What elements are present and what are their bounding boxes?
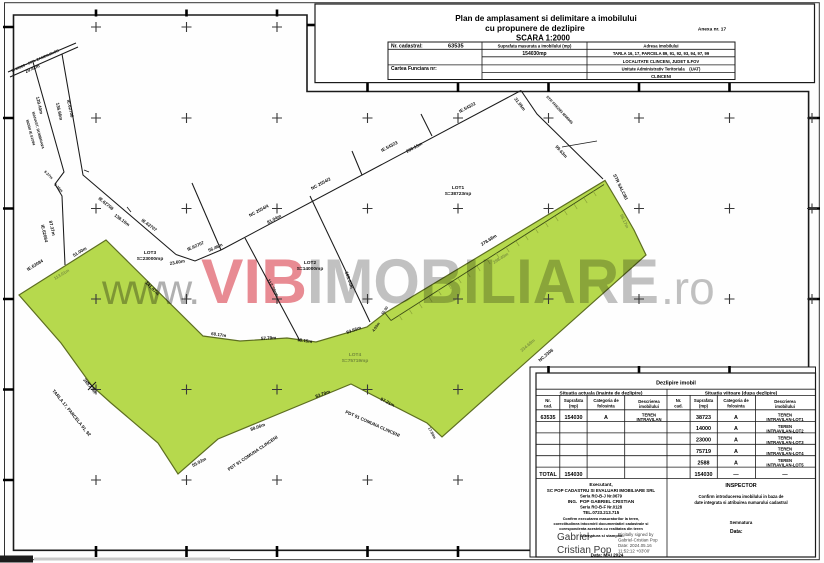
svg-text:Executant,: Executant, <box>589 482 612 487</box>
svg-text:Categoria de: Categoria de <box>593 398 619 403</box>
svg-text:date integrata si atribuirea n: date integrata si atribuirea numarului c… <box>694 500 787 505</box>
svg-text:Nr.: Nr. <box>545 398 551 403</box>
svg-text:63535: 63535 <box>448 44 464 50</box>
svg-text:IMOBILIARE: IMOBILIARE <box>307 247 659 317</box>
svg-text:INTRAVILAN: INTRAVILAN <box>636 417 661 422</box>
svg-text:63535: 63535 <box>541 415 556 421</box>
svg-text:Unitate Administrativ Teritori: Unitate Administrativ Teritoriala (UAT) <box>622 66 701 71</box>
svg-text:Suprafata: Suprafata <box>694 398 714 403</box>
svg-text:SC POP CADASTRU SI EVALUARI IM: SC POP CADASTRU SI EVALUARI IMOBILIARE S… <box>547 488 655 493</box>
svg-text:corectitudinea intocmirii docu: corectitudinea intocmirii documentatiei … <box>554 522 649 526</box>
svg-text:TEL.0723.213.715: TEL.0723.213.715 <box>583 510 620 515</box>
svg-text:Digitally signed by: Digitally signed by <box>618 532 654 537</box>
svg-text:(mp): (mp) <box>569 403 579 408</box>
svg-text:Categoria de: Categoria de <box>723 398 749 403</box>
svg-text:LOCALITATE CLINCENI, JUDET ILF: LOCALITATE CLINCENI, JUDET ILFOV <box>623 59 700 64</box>
svg-text:—: — <box>733 472 739 478</box>
svg-text:Plan de amplasament si delimit: Plan de amplasament si delimitare a imob… <box>455 14 637 23</box>
svg-text:A: A <box>734 460 738 466</box>
svg-text:Suprafata: Suprafata <box>564 398 584 403</box>
svg-text:14000: 14000 <box>696 426 711 432</box>
svg-text:2588: 2588 <box>698 460 710 466</box>
svg-text:INTRAVILAN-LOT1: INTRAVILAN-LOT1 <box>766 417 804 422</box>
svg-text:Data: MAI 2024: Data: MAI 2024 <box>591 553 624 558</box>
svg-text:cad.: cad. <box>544 403 552 408</box>
svg-text:75719: 75719 <box>696 449 711 455</box>
svg-text:S=38723mp: S=38723mp <box>445 191 472 197</box>
svg-text:Seria RO-B-F Nr.0128: Seria RO-B-F Nr.0128 <box>580 505 623 510</box>
svg-text:Date: 2024.05.16: Date: 2024.05.16 <box>618 543 652 548</box>
svg-text:(mp): (mp) <box>699 403 709 408</box>
svg-text:folosinta: folosinta <box>727 403 745 408</box>
svg-text:INTRAVILAN-LOT2: INTRAVILAN-LOT2 <box>766 428 804 433</box>
svg-text:38723: 38723 <box>696 415 711 421</box>
svg-text:ING. POP GABRIEL CRISTIAN: ING. POP GABRIEL CRISTIAN <box>568 499 635 504</box>
svg-text:LOT4: LOT4 <box>349 352 362 358</box>
svg-text:Gabriel-Cristian Pop: Gabriel-Cristian Pop <box>618 538 658 543</box>
svg-text:A: A <box>734 426 738 432</box>
svg-text:folosinta: folosinta <box>597 403 615 408</box>
svg-text:Suprafata masurata a imobilulu: Suprafata masurata a imobilului (mp) <box>498 43 572 48</box>
svg-text:corespondenta acesteia cu real: corespondenta acesteia cu realitatea din… <box>559 527 643 531</box>
svg-text:Semnatura: Semnatura <box>730 520 753 525</box>
svg-text:TARLA 16, 17, PARCELA 89, 91,: TARLA 16, 17, PARCELA 89, 91, 92, 93, 94… <box>613 51 710 56</box>
svg-text:A: A <box>734 449 738 455</box>
svg-text:Confirm introducerea imobilulu: Confirm introducerea imobilului in baza … <box>699 494 785 499</box>
svg-text:SCARA 1:2000: SCARA 1:2000 <box>516 34 571 43</box>
svg-text:Anexa nr. 17: Anexa nr. 17 <box>698 27 727 33</box>
svg-text:LOT3: LOT3 <box>144 250 157 256</box>
svg-text:www.: www. <box>101 266 199 314</box>
svg-text:154030: 154030 <box>695 472 713 478</box>
svg-text:Gabriel-: Gabriel- <box>557 532 593 543</box>
svg-text:Situatia actuala (inainte de d: Situatia actuala (inainte de dezlipire) <box>560 390 643 396</box>
svg-text:154030: 154030 <box>565 415 583 421</box>
svg-text:INSPECTOR: INSPECTOR <box>725 483 756 489</box>
svg-text:VIB: VIB <box>201 247 307 317</box>
svg-text:A: A <box>734 438 738 444</box>
svg-text:INTRAVILAN-LOT3: INTRAVILAN-LOT3 <box>766 440 804 445</box>
svg-text:LOT2: LOT2 <box>304 260 317 266</box>
svg-text:154030: 154030 <box>565 472 583 478</box>
svg-text:INTRAVILAN-LOT4: INTRAVILAN-LOT4 <box>766 451 804 456</box>
svg-text:Nr.: Nr. <box>676 398 682 403</box>
svg-text:23000: 23000 <box>696 438 711 444</box>
svg-text:cad.: cad. <box>674 403 682 408</box>
svg-text:INTRAVILAN-LOT5: INTRAVILAN-LOT5 <box>766 463 804 468</box>
svg-text:LOT1: LOT1 <box>452 185 465 191</box>
svg-text:—: — <box>782 472 788 478</box>
svg-text:Confirm executarea masuratoril: Confirm executarea masuratorilor la tere… <box>563 517 640 521</box>
svg-text:Dezlipire imobil: Dezlipire imobil <box>656 381 696 387</box>
svg-text:Nr. cadastral:: Nr. cadastral: <box>391 44 423 50</box>
svg-text:CLINCENI: CLINCENI <box>651 74 671 79</box>
svg-text:Situatia viitoare (dupa dezli: Situatia viitoare (dupa dezlipire) <box>705 390 778 396</box>
svg-text:S=23000mp: S=23000mp <box>137 256 164 262</box>
svg-text:57.79m: 57.79m <box>261 335 277 341</box>
svg-text:Seria RO-B-J Nr.0679: Seria RO-B-J Nr.0679 <box>580 494 623 499</box>
svg-text:.ro: .ro <box>661 262 715 314</box>
svg-text:A: A <box>734 415 738 421</box>
svg-text:imobilului: imobilului <box>775 404 795 409</box>
svg-text:TOTAL: TOTAL <box>539 472 557 478</box>
svg-text:cu propunere de dezlipire: cu propunere de dezlipire <box>485 24 585 33</box>
svg-text:imobilului: imobilului <box>639 404 659 409</box>
svg-text:S=14000mp: S=14000mp <box>297 266 324 272</box>
svg-text:A: A <box>604 415 608 421</box>
svg-text:Adresa imobilului: Adresa imobilului <box>643 43 678 48</box>
svg-text:S=75719mp: S=75719mp <box>342 358 369 364</box>
svg-text:Cartea Funciara nr:: Cartea Funciara nr: <box>391 66 437 72</box>
svg-text:154030mp: 154030mp <box>522 51 546 57</box>
svg-text:Data:: Data: <box>730 529 743 535</box>
